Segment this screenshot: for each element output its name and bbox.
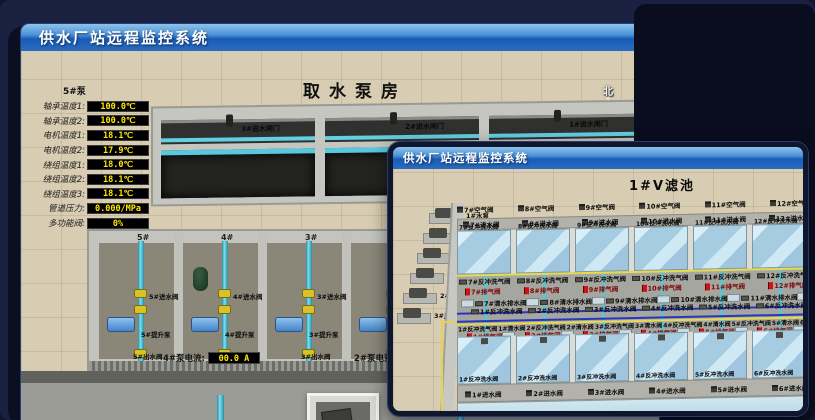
filter-cell[interactable]: 3#反冲洗水阀 [575, 333, 634, 382]
valve-icon [459, 279, 467, 284]
equipment-machine-icon [409, 288, 427, 298]
equipment-machine-icon [429, 228, 447, 238]
backwash-water-valve[interactable]: 4#反冲洗水阀 [642, 302, 693, 313]
cell-valve-icon [599, 336, 606, 342]
valve-icon [518, 205, 524, 211]
inlet-valve[interactable]: 6#进水阀 [772, 382, 808, 393]
valve-icon [517, 278, 525, 283]
equipment-machine-icon [423, 248, 441, 258]
cell-valve-icon [776, 332, 783, 338]
pump4-current-value[interactable]: 00.0 A [208, 352, 260, 364]
pump5-telemetry-panel: 轴承温度1: 100.0℃ 轴承温度2: 100.0℃ 电机温度1: 18.1℃… [23, 99, 153, 230]
air-valve[interactable]: 9#空气阀 [579, 201, 615, 212]
valve-icon [642, 305, 650, 310]
gate-valve-icon[interactable] [390, 112, 397, 124]
valve-icon [540, 299, 548, 304]
telemetry-value[interactable]: 18.1℃ [87, 174, 149, 185]
inlet-valve-label: 4#进水阀 [233, 291, 262, 301]
air-valve[interactable]: 4#空气阀 [648, 412, 686, 416]
flag-icon [524, 287, 529, 294]
telemetry-label: 绕组温度1: [23, 159, 85, 171]
check-valve-icon[interactable] [218, 305, 231, 314]
telemetry-label: 多功能阀: [23, 217, 85, 229]
inlet-valve-label: 3#进水阀 [317, 291, 346, 301]
valve-icon [699, 304, 707, 309]
flag-icon [583, 285, 588, 292]
inlet-valve[interactable]: 5#进水阀 [711, 384, 747, 395]
front-window-title: 供水厂站远程监控系统 [403, 150, 528, 166]
valve-icon [639, 203, 645, 209]
lift-pump-label: 3#提升泵 [309, 329, 338, 339]
exhaust-valve[interactable]: 7#排气阀 [465, 286, 500, 297]
air-valve[interactable]: 5#空气阀 [711, 411, 749, 416]
valve-icon [588, 389, 594, 395]
valve-icon [526, 390, 532, 396]
backwash-water-valve[interactable]: 1#反冲洗水阀 [471, 305, 522, 316]
outlet-valve-label: 3#出水阀 [301, 351, 330, 361]
cell-valve-icon [717, 333, 724, 339]
telemetry-value[interactable]: 100.0℃ [87, 101, 149, 112]
pump-bay: 3# 3#进水阀 3#提升泵 3#出水阀 [267, 231, 351, 377]
telemetry-label: 轴承温度2: [23, 115, 85, 127]
valve-icon [741, 295, 749, 300]
telemetry-row: 绕组温度2: 18.1℃ [23, 172, 153, 187]
outlet-valve-label: 5#出水阀 [133, 351, 162, 361]
lift-pump-icon[interactable] [275, 317, 303, 332]
front-window-titlebar[interactable]: 供水厂站远程监控系统 [393, 147, 803, 169]
filter-cell[interactable]: 4#反冲洗水阀 [634, 332, 693, 381]
flag-icon [768, 282, 773, 289]
scene-title-intake: 取水泵房 [303, 77, 407, 102]
bent-pipe-icon [585, 415, 594, 416]
valve-icon [772, 385, 778, 391]
air-valve[interactable]: 2#空气阀 [523, 415, 561, 416]
valve-icon [770, 200, 776, 206]
telemetry-row: 绕组温度3: 18.1℃ [23, 187, 153, 202]
telemetry-value[interactable]: 18.1℃ [87, 188, 149, 199]
telemetry-row: 轴承温度1: 100.0℃ [23, 99, 153, 114]
filter-cell[interactable]: 8#反冲洗水阀 [516, 228, 575, 273]
filter-cell[interactable]: 6#反冲洗水阀 [752, 329, 808, 378]
desktop: 供水厂站远程监控系统 取水泵房 5#泵 轴承温度1: 100.0℃ 轴承温度2:… [0, 0, 815, 420]
valve-icon [757, 273, 765, 278]
equipment-machine-icon [416, 268, 434, 278]
telemetry-row: 电机温度2: 17.9℃ [23, 143, 153, 158]
telemetry-label: 电机温度1: [23, 129, 85, 141]
equipment-cabinet[interactable] [307, 393, 379, 420]
gate-valve-icon[interactable] [554, 110, 561, 122]
telemetry-label: 绕组温度3: [23, 188, 85, 200]
valve-icon [711, 386, 717, 392]
gate-valve-icon[interactable] [226, 114, 233, 126]
intake-gate[interactable]: 1#进水闸门 [489, 114, 643, 140]
valve-icon [606, 298, 614, 303]
telemetry-label: 轴承温度1: [23, 100, 85, 112]
filter-cells-top: 7#反冲洗水阀 8#反冲洗水阀 9#反冲洗水阀 10#反冲洗水阀 11#反冲洗水… [457, 223, 808, 274]
telemetry-row: 绕组温度1: 18.0℃ [23, 157, 153, 172]
valve-icon [632, 275, 640, 280]
back-window-title: 供水厂站远程监控系统 [39, 27, 209, 48]
vacuum-tank [193, 267, 208, 291]
lift-pump-icon[interactable] [107, 317, 135, 332]
bent-pipe-icon [772, 411, 781, 416]
inlet-valve-icon[interactable] [218, 289, 231, 298]
background-window [634, 4, 815, 154]
intake-gate-row: 3#进水闸门 2#进水闸门 1#进水闸门 [161, 114, 653, 145]
telemetry-value[interactable]: 0% [87, 218, 149, 229]
intake-gate[interactable]: 2#进水闸门 [325, 116, 479, 142]
exhaust-valve[interactable]: 12#排气阀 [768, 279, 808, 290]
valve-icon [575, 277, 583, 282]
pump4-current-label: 4#泵电流: [163, 352, 205, 364]
valve-icon [465, 391, 471, 397]
filter-cell[interactable]: 12#反冲洗水阀 [752, 223, 808, 268]
telemetry-row: 轴承温度2: 100.0℃ [23, 114, 153, 129]
inlet-valve-icon[interactable] [134, 289, 147, 298]
backwash-water-valve[interactable]: 3#反冲洗水阀 [585, 303, 636, 314]
cell-valve-icon [481, 338, 488, 344]
telemetry-row: 管道压力: 0.000/MPa [23, 201, 153, 216]
gate-label: 1#进水闸门 [569, 119, 608, 130]
inlet-valve-label: 5#进水阀 [149, 291, 178, 301]
pump4-current-readout: 4#泵电流: 00.0 A [163, 352, 260, 364]
cell-valve-icon [540, 337, 547, 343]
lift-pump-icon[interactable] [359, 317, 387, 332]
telemetry-value[interactable]: 17.9℃ [87, 145, 149, 156]
flag-icon [465, 288, 470, 295]
valve-icon [528, 308, 536, 313]
inlet-valve-icon[interactable] [302, 289, 315, 298]
check-valve-icon[interactable] [134, 305, 147, 314]
filter-cell[interactable]: 10#反冲洗水阀 [634, 226, 693, 271]
branch-pipe [217, 395, 224, 420]
filter-cell[interactable]: 1#反冲洗水阀 [457, 335, 516, 384]
filter-cells-bottom: 1#反冲洗水阀 2#反冲洗水阀 3#反冲洗水阀 4#反冲洗水阀 5#反冲洗水阀 [457, 329, 808, 384]
lift-pump-icon[interactable] [191, 317, 219, 332]
gate-label: 3#进水闸门 [241, 124, 280, 135]
intake-pool [161, 148, 315, 198]
backwash-water-valve[interactable]: 2#反冲洗水阀 [528, 304, 579, 315]
exhaust-valve[interactable]: 11#排气阀 [705, 281, 745, 292]
valve-icon [671, 297, 679, 302]
filter-cell[interactable]: 2#反冲洗水阀 [516, 334, 575, 383]
telemetry-value[interactable]: 0.000/MPa [87, 203, 149, 214]
telemetry-label: 绕组温度2: [23, 173, 85, 185]
telemetry-value[interactable]: 18.0℃ [87, 159, 149, 170]
check-valve-icon[interactable] [302, 305, 315, 314]
valve-icon [475, 301, 483, 306]
lift-pump-label: 4#提升泵 [225, 329, 254, 339]
exhaust-valve[interactable]: 9#排气阀 [583, 283, 618, 294]
air-valve[interactable]: 8#空气阀 [518, 203, 554, 214]
inlet-valve[interactable]: 1#进水阀 [465, 389, 501, 400]
valve-icon [756, 303, 764, 308]
valve-icon [695, 274, 703, 279]
backwash-water-valve[interactable]: 6#反冲洗水阀 [756, 299, 807, 310]
exhaust-valve[interactable]: 8#排气阀 [524, 285, 559, 296]
intake-gate[interactable]: 3#进水闸门 [161, 118, 315, 144]
cable-line-vertical [441, 321, 443, 416]
bent-pipe-icon [710, 412, 719, 416]
air-valve[interactable]: 12#空气阀 [770, 197, 808, 208]
air-valve[interactable]: 7#空气阀 [457, 204, 493, 215]
lift-pump-label: 5#提升泵 [141, 329, 170, 339]
filter-scene: 1#V滤池 1#水泵 2#水泵 3#水泵 1#风机 [393, 169, 803, 411]
window-filter-pool: 供水厂站远程监控系统 1#V滤池 1#水泵 2#水泵 3#水泵 [388, 142, 808, 416]
scene-title-filter: 1#V滤池 [597, 175, 727, 194]
telemetry-value[interactable]: 100.0℃ [87, 115, 149, 126]
inlet-valve[interactable]: 4#进水阀 [649, 385, 685, 396]
telemetry-label: 管道压力: [23, 202, 85, 214]
back-window-titlebar[interactable]: 供水厂站远程监控系统 [21, 24, 659, 51]
valve-icon [471, 309, 479, 314]
pump5-panel-header: 5#泵 [63, 84, 86, 97]
air-valve[interactable]: 10#空气阀 [639, 200, 680, 211]
valve-icon [705, 201, 711, 207]
telemetry-row: 电机温度1: 18.1℃ [23, 128, 153, 143]
valve-icon [585, 306, 593, 311]
valve-icon [649, 388, 655, 394]
flag-icon [705, 283, 710, 290]
filter-cell[interactable]: 7#反冲洗水阀 [457, 229, 516, 274]
telemetry-label: 电机温度2: [23, 144, 85, 156]
equipment-machine-icon [403, 308, 421, 318]
filter-cell[interactable]: 11#反冲洗水阀 [693, 225, 752, 270]
backwash-water-valve[interactable]: 5#反冲洗水阀 [699, 301, 750, 312]
valve-icon [579, 204, 585, 210]
exhaust-valve[interactable]: 10#排气阀 [642, 282, 682, 293]
air-valve[interactable]: 3#空气阀 [586, 413, 624, 416]
gate-label: 2#进水闸门 [405, 121, 444, 132]
air-valve[interactable]: 11#空气阀 [705, 199, 746, 210]
bent-pipe-icon [648, 413, 657, 416]
cell-valve-icon [658, 334, 665, 340]
valve-icon [457, 207, 463, 213]
filter-structure: 7#空气阀 8#空气阀 9#空气阀 10#空气阀 11#空气阀 [457, 195, 808, 416]
telemetry-value[interactable]: 18.1℃ [87, 130, 149, 141]
filter-cell[interactable]: 5#反冲洗水阀 [693, 331, 752, 380]
inlet-valve[interactable]: 2#进水阀 [526, 387, 562, 398]
flag-icon [642, 284, 647, 291]
filter-cell[interactable]: 9#反冲洗水阀 [575, 227, 634, 272]
inlet-valve[interactable]: 3#进水阀 [588, 386, 624, 397]
